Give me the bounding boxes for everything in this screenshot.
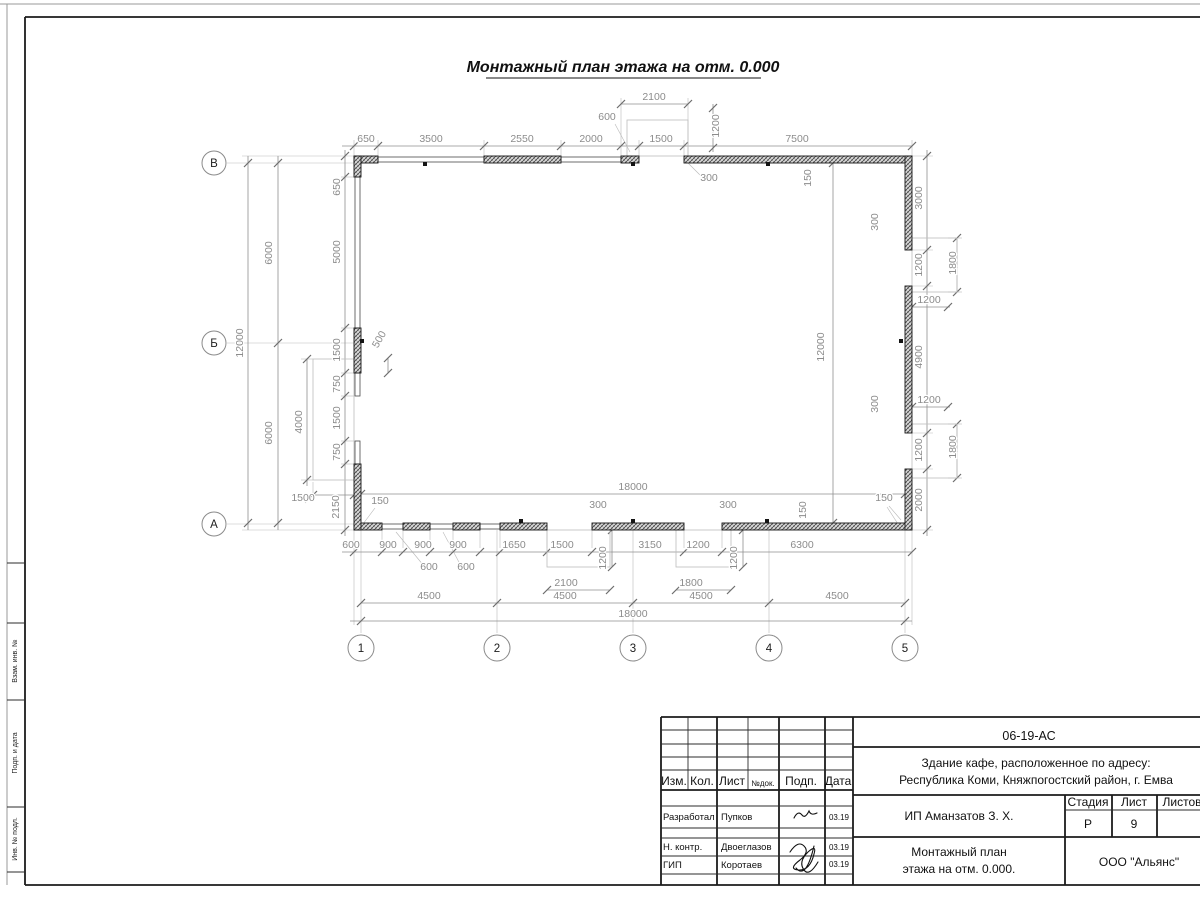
dimension-label: 300 xyxy=(589,499,607,511)
dimension-label: 7500 xyxy=(785,133,809,145)
col-kol: Кол. xyxy=(690,774,714,788)
dimension-label: 750 xyxy=(331,443,343,461)
window-opening xyxy=(480,524,500,529)
dimension-label: 1800 xyxy=(947,251,959,275)
dimension-label: 1200 xyxy=(710,114,722,138)
sheet-label: Лист xyxy=(1121,795,1148,809)
dimension-label: 18000 xyxy=(618,481,647,493)
wall-segment xyxy=(453,523,480,530)
dimension-label: 1200 xyxy=(728,546,740,570)
dimension-label: 12000 xyxy=(815,332,827,361)
col-ndok: №док. xyxy=(751,779,774,788)
client: ИП Аманзатов З. Х. xyxy=(904,809,1013,823)
dimension-label: 12000 xyxy=(234,328,246,357)
wall-segment xyxy=(354,328,361,373)
col-list: Лист xyxy=(719,774,746,788)
sheet-value: 9 xyxy=(1131,817,1138,831)
axis-row-label: А xyxy=(210,519,218,531)
axis-row-label: В xyxy=(210,158,218,170)
dimension-label: 300 xyxy=(869,213,881,231)
row-ncontr-role: Н. контр. xyxy=(663,842,702,853)
leader-line xyxy=(887,507,898,524)
stage-label: Стадия xyxy=(1068,795,1109,809)
floor-plan: 6503500255020001500750021006001200300150… xyxy=(202,91,962,661)
anchor-mark xyxy=(423,162,427,166)
dimension-label: 2100 xyxy=(554,577,578,589)
dimension-label: 600 xyxy=(598,111,616,123)
wall-segment xyxy=(403,523,430,530)
dimension-label: 1650 xyxy=(502,539,526,551)
company: ООО "Альянс" xyxy=(1099,855,1179,869)
wall-segment xyxy=(905,286,912,433)
dimension-label: 4000 xyxy=(293,410,305,434)
row-ncontr-name: Двоеглазов xyxy=(721,842,772,853)
wall-segment xyxy=(722,523,912,530)
dimension-label: 150 xyxy=(371,495,389,507)
title-block: Изм. Кол. Лист №док. Подп. Дата Разработ… xyxy=(661,717,1200,885)
margin-stamp-cells: Взам. инв. № Подп. и дата Инв. № подл. xyxy=(7,563,25,872)
dimension-label: 650 xyxy=(331,178,343,196)
dimension-label: 1200 xyxy=(597,546,609,570)
drawing-sheet: Взам. инв. № Подп. и дата Инв. № подл. М… xyxy=(0,0,1200,900)
dimension-label: 150 xyxy=(802,169,814,187)
anchor-mark xyxy=(899,339,903,343)
project-line2: Республика Коми, Княжпогостский район, г… xyxy=(899,773,1173,787)
dimension-label: 3150 xyxy=(638,539,662,551)
window-opening xyxy=(355,177,360,328)
dimension-label: 300 xyxy=(719,499,737,511)
row-gip-name: Коротаев xyxy=(721,860,762,871)
leader-line xyxy=(363,508,375,524)
anchor-mark xyxy=(631,162,635,166)
anchor-mark xyxy=(519,519,523,523)
dimension-label: 600 xyxy=(420,561,438,573)
wall-segment xyxy=(621,156,639,163)
axis-col-label: 2 xyxy=(494,643,500,655)
dimension-label: 1500 xyxy=(649,133,673,145)
wall-segment xyxy=(354,464,361,530)
dimension-label: 150 xyxy=(797,501,809,519)
margin-label-vzam: Взам. инв. № xyxy=(12,639,19,682)
page-title: Монтажный план этажа на отм. 0.000 xyxy=(467,59,780,76)
dimension-label: 1500 xyxy=(291,492,315,504)
leader-line xyxy=(687,162,701,176)
window-opening xyxy=(382,524,403,529)
drawing-canvas: Взам. инв. № Подп. и дата Инв. № подл. М… xyxy=(0,0,1200,900)
wall-segment xyxy=(484,156,561,163)
window-opening xyxy=(378,157,484,162)
signature-developer xyxy=(794,811,817,818)
dimension-label: 1800 xyxy=(947,435,959,459)
dimension-label: 600 xyxy=(342,539,360,551)
margin-label-podp: Подп. и дата xyxy=(12,732,19,773)
axis-col-label: 3 xyxy=(630,643,636,655)
dimension-label: 6300 xyxy=(790,539,814,551)
dimension-label: 300 xyxy=(700,172,718,184)
dimension-label: 4900 xyxy=(913,345,925,369)
signature-ncontr-gip xyxy=(790,844,818,872)
window-opening xyxy=(355,441,360,464)
dimension-label: 500 xyxy=(370,329,389,350)
dimension-label: 900 xyxy=(414,539,432,551)
axis-col-label: 4 xyxy=(766,643,773,655)
row-developer-name: Пупков xyxy=(721,812,752,823)
dimension-label: 2000 xyxy=(579,133,603,145)
col-data: Дата xyxy=(825,774,852,788)
dimension-label: 4500 xyxy=(417,590,441,602)
col-podp: Подп. xyxy=(785,774,817,788)
dimension-label: 1800 xyxy=(679,577,703,589)
stage-value: Р xyxy=(1084,817,1092,831)
leader-line xyxy=(615,124,630,152)
wall-segment xyxy=(905,469,912,530)
axis-col-label: 1 xyxy=(358,643,364,655)
dimension-label: 150 xyxy=(875,492,893,504)
axis-col-label: 5 xyxy=(902,643,908,655)
dimension-label: 1200 xyxy=(917,394,941,406)
dimension-label: 3500 xyxy=(419,133,443,145)
dimension-label: 1200 xyxy=(917,294,941,306)
dimension-label: 6000 xyxy=(263,241,275,265)
dimension-label: 1200 xyxy=(913,438,925,462)
wall-segment xyxy=(354,156,361,177)
anchor-mark xyxy=(765,519,769,523)
dimension-label: 6000 xyxy=(263,421,275,445)
dimension-label: 3000 xyxy=(913,186,925,210)
window-opening xyxy=(355,373,360,396)
window-opening xyxy=(561,157,621,162)
dimension-label: 2150 xyxy=(330,495,342,519)
dimension-label: 1200 xyxy=(913,253,925,277)
dimension-label: 600 xyxy=(457,561,475,573)
anchor-mark xyxy=(360,339,364,343)
row-gip-role: ГИП xyxy=(663,860,682,871)
dimension-label: 4500 xyxy=(825,590,849,602)
dimension-label: 4500 xyxy=(553,590,577,602)
sheets-label: Листов xyxy=(1163,795,1200,809)
row-gip-date: 03.19 xyxy=(829,860,850,869)
margin-label-inv: Инв. № подл. xyxy=(12,817,19,861)
dimension-label: 900 xyxy=(449,539,467,551)
axis-row-label: Б xyxy=(210,338,218,350)
wall-segment xyxy=(500,523,547,530)
dimension-label: 750 xyxy=(331,375,343,393)
anchor-mark xyxy=(766,162,770,166)
dimension-label: 4500 xyxy=(689,590,713,602)
dimension-label: 650 xyxy=(357,133,375,145)
dimension-label: 1500 xyxy=(550,539,574,551)
wall-segment xyxy=(592,523,684,530)
dimension-label: 5000 xyxy=(331,240,343,264)
dimension-label: 1500 xyxy=(331,338,343,362)
dimension-label: 1500 xyxy=(331,406,343,430)
row-developer-role: Разработал xyxy=(663,812,715,823)
sheet-name-line1: Монтажный план xyxy=(911,845,1007,859)
dimension-label: 18000 xyxy=(618,608,647,620)
anchor-mark xyxy=(631,519,635,523)
dimension-label: 300 xyxy=(869,395,881,413)
row-ncontr-date: 03.19 xyxy=(829,843,850,852)
wall-segment xyxy=(905,156,912,250)
row-developer-date: 03.19 xyxy=(829,813,850,822)
col-izm: Изм. xyxy=(661,774,687,788)
dimension-label: 2550 xyxy=(510,133,534,145)
project-line1: Здание кафе, расположенное по адресу: xyxy=(921,756,1150,770)
doc-number: 06-19-АС xyxy=(1002,729,1055,743)
dimension-label: 2000 xyxy=(913,488,925,512)
drawing-title: Монтажный план этажа на отм. 0.000 xyxy=(467,59,780,78)
dimension-label: 900 xyxy=(379,539,397,551)
sheet-name-line2: этажа на отм. 0.000. xyxy=(903,862,1016,876)
dimension-label: 1200 xyxy=(686,539,710,551)
wall-segment xyxy=(684,156,912,163)
window-opening xyxy=(430,524,453,529)
dimension-label: 2100 xyxy=(642,91,666,103)
